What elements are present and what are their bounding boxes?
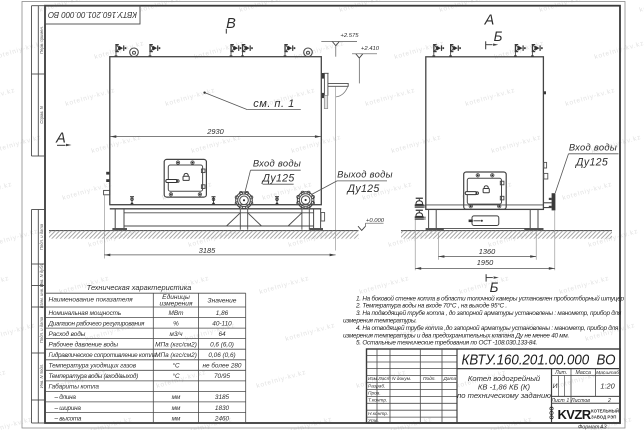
svg-text:Диапазон рабочего регулировани: Диапазон рабочего регулирования: [48, 319, 146, 327]
svg-text:см. п. 1: см. п. 1: [253, 98, 294, 110]
svg-text:kotelniy-kv.kz: kotelniy-kv.kz: [465, 87, 517, 108]
svg-text:1:20: 1:20: [600, 382, 615, 391]
svg-text:Взам. инв. N: Взам. инв. N: [39, 283, 44, 308]
svg-text:°С: °С: [172, 372, 180, 380]
svg-text:1830: 1830: [215, 405, 230, 412]
svg-text:2930: 2930: [206, 127, 224, 136]
svg-text:Ду125: Ду125: [575, 156, 608, 168]
svg-text:Лист: Лист: [550, 398, 565, 404]
svg-text:МВт: МВт: [169, 310, 185, 317]
svg-text:Номинальная мощность: Номинальная мощность: [49, 310, 122, 317]
svg-text:Перв. примен.: Перв. примен.: [39, 26, 44, 54]
svg-text:Подп.: Подп.: [423, 376, 436, 382]
svg-text:– длина: – длина: [49, 393, 77, 401]
svg-text:3185: 3185: [215, 394, 230, 401]
svg-text:N докум.: N докум.: [392, 376, 411, 382]
svg-text:В: В: [226, 16, 236, 32]
svg-text:5. Остальные технические треб: 5. Остальные технические требования по О…: [356, 339, 537, 347]
svg-text:kotelniy-kv.kz: kotelniy-kv.kz: [491, 134, 543, 155]
svg-text:1360: 1360: [479, 247, 496, 256]
svg-text:А: А: [55, 131, 66, 147]
svg-text:kotelniy-kv.kz: kotelniy-kv.kz: [559, 275, 611, 296]
svg-text:по техническому заданию: по техническому заданию: [457, 391, 551, 400]
svg-text:kotelniy-kv.kz: kotelniy-kv.kz: [339, 0, 391, 14]
svg-text:kotelniy-kv.kz: kotelniy-kv.kz: [565, 87, 617, 108]
svg-text:ООО: ООО: [550, 406, 556, 420]
svg-text:Формат: Формат: [578, 424, 600, 430]
svg-text:kotelniy-kv.kz: kotelniy-kv.kz: [365, 87, 417, 108]
svg-text:KVZR: KVZR: [558, 407, 592, 422]
svg-text:КОТЕЛЬНЫЙ: КОТЕЛЬНЫЙ: [591, 409, 619, 414]
svg-text:kotelniy-kv.kz: kotelniy-kv.kz: [139, 0, 191, 14]
svg-text:kotelniy-kv.kz: kotelniy-kv.kz: [0, 322, 36, 343]
svg-text:Утв.: Утв.: [368, 418, 379, 424]
svg-text:kotelniy-kv.kz: kotelniy-kv.kz: [65, 87, 117, 108]
svg-text:– ширина: – ширина: [49, 405, 82, 412]
svg-text:40-110: 40-110: [212, 320, 232, 327]
svg-text:kotelniy-kv.kz: kotelniy-kv.kz: [359, 275, 411, 296]
svg-text:измерения температуры.: измерения температуры.: [343, 318, 417, 325]
svg-text:1: 1: [566, 398, 569, 404]
svg-text:Наименование показателя: Наименование показателя: [49, 297, 134, 304]
svg-text:kotelniy-kv.kz: kotelniy-kv.kz: [259, 275, 311, 296]
svg-text:Инв. N дубл.: Инв. N дубл.: [39, 263, 44, 287]
svg-text:Т.контр.: Т.контр.: [368, 397, 387, 403]
svg-text:Вход воды: Вход воды: [253, 158, 301, 169]
svg-text:0,6 (6,0): 0,6 (6,0): [210, 341, 234, 348]
svg-text:Подп. и дата: Подп. и дата: [39, 316, 44, 343]
svg-text:kotelniy-kv.kz: kotelniy-kv.kz: [256, 369, 308, 390]
svg-text:Н.контр.: Н.контр.: [368, 411, 388, 417]
svg-text:Б: Б: [490, 280, 499, 295]
svg-text:А: А: [484, 12, 495, 28]
svg-text:kotelniy-kv.kz: kotelniy-kv.kz: [562, 181, 614, 202]
svg-text:Масса: Масса: [576, 370, 591, 376]
svg-text:kotelniy-kv.kz: kotelniy-kv.kz: [194, 40, 246, 61]
svg-text:мм: мм: [172, 415, 181, 422]
svg-text:Габариты котла: Габариты котла: [49, 383, 100, 391]
svg-text:kotelniy-kv.kz: kotelniy-kv.kz: [0, 369, 7, 390]
svg-text:Техническая характеристика: Техническая характеристика: [87, 283, 192, 292]
svg-text:Рабочее давление воды: Рабочее давление воды: [49, 340, 119, 348]
svg-text:Ду125: Ду125: [261, 173, 294, 185]
svg-text:kotelniy-kv.kz: kotelniy-kv.kz: [391, 134, 443, 155]
svg-text:1950: 1950: [477, 258, 494, 267]
svg-text:Масштаб: Масштаб: [596, 370, 619, 376]
svg-text:МПа (кгс/см2): МПа (кгс/см2): [155, 352, 197, 359]
svg-text:Справ. N: Справ. N: [39, 105, 44, 123]
svg-text:2: 2: [607, 398, 611, 404]
svg-text:Температура уходящих газов: Температура уходящих газов: [49, 362, 137, 370]
svg-text:Б: Б: [494, 29, 503, 44]
svg-text:– высота: – высота: [49, 415, 82, 422]
svg-text:70/95: 70/95: [214, 373, 230, 380]
svg-text:Значение: Значение: [208, 298, 237, 305]
svg-text:КВТУ.160.201.00.000 ВО: КВТУ.160.201.00.000 ВО: [462, 351, 616, 368]
svg-text:мм: мм: [172, 394, 181, 401]
svg-text:kotelniy-kv.kz: kotelniy-kv.kz: [394, 40, 446, 61]
svg-text:мм: мм: [172, 405, 181, 412]
svg-text:kotelniy-kv.kz: kotelniy-kv.kz: [91, 134, 143, 155]
svg-text:3185: 3185: [199, 246, 216, 255]
svg-text:+2.575: +2.575: [340, 33, 359, 39]
svg-text:kotelniy-kv.kz: kotelniy-kv.kz: [439, 0, 491, 14]
svg-text:kotelniy-kv.kz: kotelniy-kv.kz: [459, 275, 511, 296]
svg-text:Изм.Лист: Изм.Лист: [368, 376, 391, 382]
svg-text:kotelniy-kv.kz: kotelniy-kv.kz: [0, 87, 16, 108]
svg-text:°С: °С: [172, 362, 180, 370]
svg-text:2. Температура воды на входе: 2. Температура воды на входе 70°С , на в…: [355, 302, 507, 310]
svg-text:1,86: 1,86: [216, 310, 229, 317]
svg-text:МПа (кгс/см2): МПа (кгс/см2): [155, 341, 197, 348]
svg-text:64: 64: [218, 331, 226, 338]
svg-text:kotelniy-kv.kz: kotelniy-kv.kz: [0, 228, 39, 249]
svg-text:kotelniy-kv.kz: kotelniy-kv.kz: [165, 87, 217, 108]
svg-text:+2.410: +2.410: [361, 46, 380, 52]
svg-text:Дата: Дата: [443, 376, 457, 382]
svg-text:kotelniy-kv.kz: kotelniy-kv.kz: [594, 40, 644, 61]
svg-text:Подп. и дата: Подп. и дата: [39, 223, 44, 250]
svg-text:А3: А3: [599, 424, 607, 430]
svg-text:kotelniy-kv.kz: kotelniy-kv.kz: [62, 181, 114, 202]
svg-text:3. На подводящей трубе котла: 3. На подводящей трубе котла , до запорн…: [356, 309, 622, 317]
svg-text:Вход воды: Вход воды: [569, 142, 617, 153]
svg-text:kotelniy-kv.kz: kotelniy-kv.kz: [0, 134, 42, 155]
svg-text:4. На отводящей трубе котла ,: 4. На отводящей трубе котла ,до запорной…: [356, 324, 619, 332]
svg-text:kotelniy-kv.kz: kotelniy-kv.kz: [639, 0, 644, 14]
svg-text:Разраб.: Разраб.: [368, 383, 385, 389]
svg-text:Листов: Листов: [570, 398, 590, 404]
svg-text:2460: 2460: [214, 415, 230, 422]
svg-text:%: %: [173, 320, 179, 327]
svg-text:Гидравлическое сопротивление к: Гидравлическое сопротивление котла: [49, 351, 158, 359]
svg-text:kotelniy-kv.kz: kotelniy-kv.kz: [156, 369, 208, 390]
svg-text:И: И: [553, 383, 558, 390]
svg-text:КВТУ.160.201.00.000 ВО: КВТУ.160.201.00.000 ВО: [48, 10, 137, 19]
svg-text:измерения температуры и два пр: измерения температуры и два предохраните…: [343, 331, 569, 339]
svg-text:kotelniy-kv.kz: kotelniy-kv.kz: [285, 322, 337, 343]
svg-text:Расход воды: Расход воды: [49, 330, 86, 338]
svg-text:ЗАВОД РЭП: ЗАВОД РЭП: [591, 415, 616, 420]
svg-text:kotelniy-kv.kz: kotelniy-kv.kz: [539, 0, 591, 14]
svg-text:1. На боковой стенке котла в: 1. На боковой стенке котла в области топ…: [356, 294, 624, 302]
svg-text:не более 280: не более 280: [202, 362, 241, 370]
svg-text:Пров.: Пров.: [368, 390, 381, 396]
svg-text:Температура воды (вход/выход): Температура воды (вход/выход): [49, 372, 139, 380]
svg-text:Инв. N подл.: Инв. N подл.: [39, 364, 44, 388]
svg-text:Ду125: Ду125: [346, 183, 379, 195]
svg-text:kotelniy-kv.kz: kotelniy-kv.kz: [191, 134, 243, 155]
svg-text:измерения: измерения: [160, 301, 193, 308]
svg-text:Выход воды: Выход воды: [337, 169, 393, 180]
svg-text:kotelniy-kv.kz: kotelniy-kv.kz: [239, 0, 291, 14]
svg-text:Лит.: Лит.: [554, 370, 567, 376]
svg-text:kotelniy-kv.kz: kotelniy-kv.kz: [0, 181, 13, 202]
svg-text:kotelniy-kv.kz: kotelniy-kv.kz: [0, 275, 10, 296]
svg-text:0,06 (0,6): 0,06 (0,6): [208, 352, 235, 359]
svg-text:м3/ч: м3/ч: [169, 331, 183, 338]
